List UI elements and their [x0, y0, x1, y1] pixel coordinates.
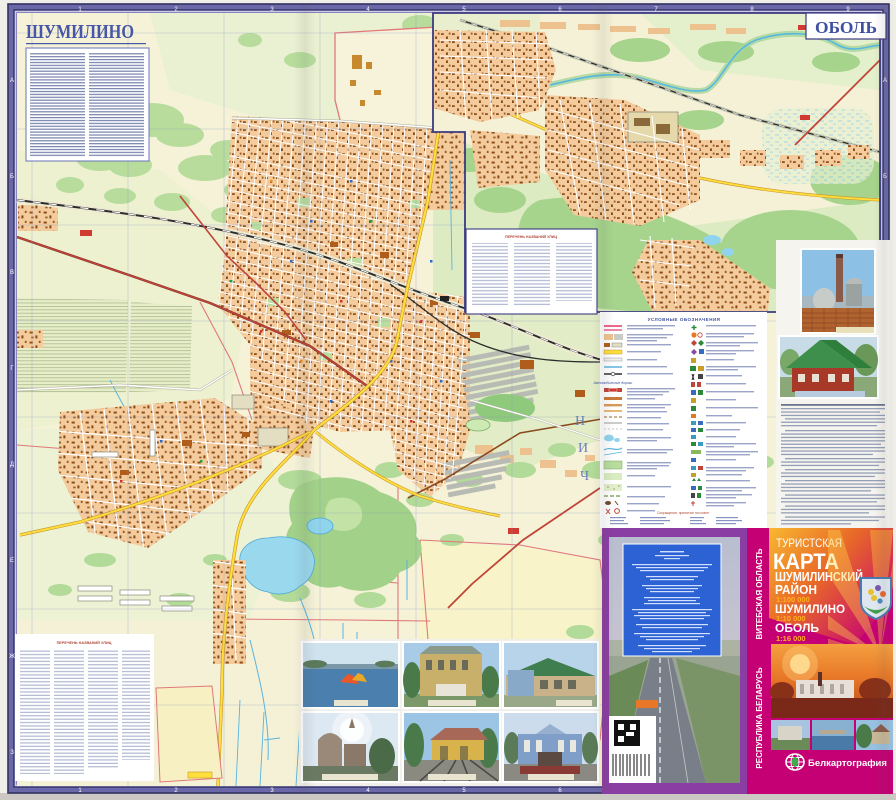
svg-text:Ж: Ж — [9, 654, 15, 660]
svg-text:УСЛОВНЫЕ ОБОЗНАЧЕНИЯ: УСЛОВНЫЕ ОБОЗНАЧЕНИЯ — [648, 317, 721, 322]
svg-text:1:100 000: 1:100 000 — [776, 595, 810, 604]
svg-text:1:10 000: 1:10 000 — [776, 614, 806, 623]
svg-text:В: В — [10, 270, 14, 276]
svg-text:Н: Н — [575, 414, 585, 429]
svg-text:1:16 000: 1:16 000 — [776, 634, 806, 643]
svg-text:Д: Д — [10, 462, 14, 468]
svg-text:З: З — [10, 750, 14, 756]
svg-text:И: И — [578, 441, 588, 456]
svg-text:Е: Е — [10, 558, 14, 564]
svg-text:Ч: Ч — [580, 469, 589, 484]
svg-text:А: А — [10, 78, 14, 84]
svg-text:Сокращения, принятые на плане: Сокращения, принятые на плане — [657, 511, 709, 515]
svg-text:ВИТЕБСКАЯ ОБЛАСТЬ: ВИТЕБСКАЯ ОБЛАСТЬ — [755, 548, 764, 639]
svg-text:ПЕРЕЧЕНЬ НАЗВАНИЙ УЛИЦ: ПЕРЕЧЕНЬ НАЗВАНИЙ УЛИЦ — [505, 235, 557, 239]
svg-text:ПЕРЕЧЕНЬ НАЗВАНИЙ УЛИЦ: ПЕРЕЧЕНЬ НАЗВАНИЙ УЛИЦ — [57, 641, 112, 645]
svg-text:ШУМИЛИНО: ШУМИЛИНО — [26, 21, 134, 43]
svg-text:ОБОЛЬ: ОБОЛЬ — [815, 18, 877, 37]
svg-text:РЕСПУБЛИКА БЕЛАРУСЬ: РЕСПУБЛИКА БЕЛАРУСЬ — [755, 667, 764, 768]
svg-text:Б: Б — [10, 174, 14, 180]
